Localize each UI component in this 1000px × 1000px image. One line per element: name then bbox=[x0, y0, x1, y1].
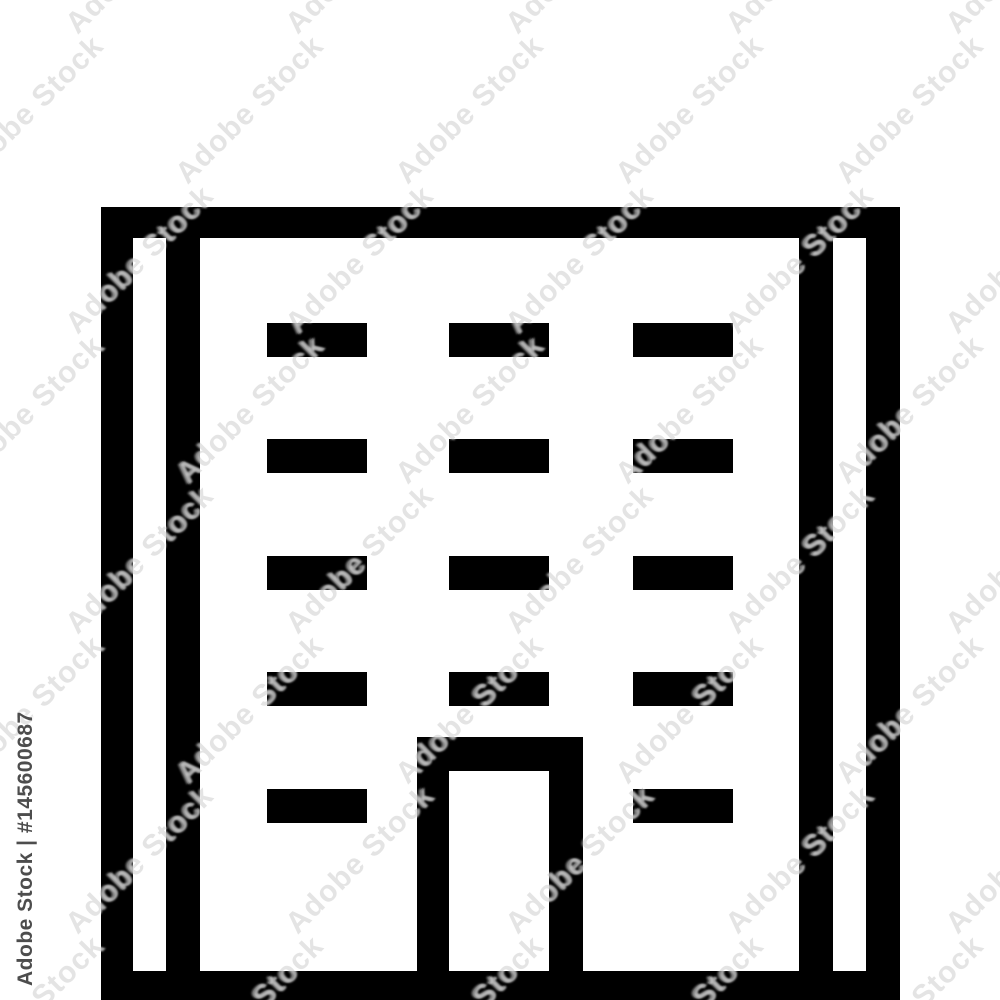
building-inner-left-wall bbox=[166, 238, 200, 971]
adobe-stock-watermark-text: Adobe Stock bbox=[829, 329, 990, 490]
adobe-stock-watermark-text: Adobe Stock bbox=[939, 779, 1000, 940]
adobe-stock-watermark-text: Adobe Stock bbox=[0, 329, 111, 490]
adobe-stock-watermark-text: Adobe Stock bbox=[0, 29, 111, 190]
adobe-stock-watermark-text: Adobe Stock bbox=[939, 179, 1000, 340]
window-dash bbox=[449, 323, 549, 357]
adobe-stock-watermark-text: Adobe Stock bbox=[829, 29, 990, 190]
adobe-stock-watermark-text: Adobe Stock bbox=[829, 629, 990, 790]
adobe-stock-watermark-text: Adobe Stock bbox=[0, 779, 1, 940]
window-dash bbox=[633, 556, 733, 590]
window-dash bbox=[633, 439, 733, 473]
building-top-border bbox=[101, 207, 900, 238]
adobe-stock-watermark-text: Adobe Stock bbox=[609, 629, 770, 790]
adobe-stock-watermark-text: Adobe Stock bbox=[279, 0, 440, 41]
window-dash bbox=[633, 672, 733, 706]
adobe-stock-watermark-text: Adobe Stock bbox=[939, 0, 1000, 41]
window-dash bbox=[267, 556, 367, 590]
adobe-stock-watermark-text: Adobe Stock bbox=[0, 179, 1, 340]
building-bottom-border bbox=[101, 971, 900, 1000]
building-inner-right-wall bbox=[799, 238, 833, 971]
window-dash bbox=[449, 672, 549, 706]
adobe-stock-watermark-text: Adobe Stock bbox=[389, 29, 550, 190]
adobe-stock-watermark-text: Adobe Stock bbox=[499, 179, 660, 340]
adobe-stock-watermark-text: Adobe Stock bbox=[279, 179, 440, 340]
adobe-stock-watermark-text: Adobe Stock bbox=[59, 0, 220, 41]
adobe-stock-watermark-text: Adobe Stock bbox=[169, 29, 330, 190]
adobe-stock-watermark-text: Adobe Stock bbox=[0, 479, 1, 640]
window-dash bbox=[267, 672, 367, 706]
stock-image-canvas: Adobe StockAdobe StockAdobe StockAdobe S… bbox=[0, 0, 1000, 1000]
adobe-stock-watermark-text: Adobe Stock bbox=[499, 0, 660, 41]
adobe-stock-watermark-text: Adobe Stock bbox=[609, 29, 770, 190]
window-dash bbox=[633, 323, 733, 357]
stock-id-watermark: Adobe Stock | #145600687 bbox=[14, 711, 38, 986]
window-dash bbox=[267, 789, 367, 823]
window-dash bbox=[449, 556, 549, 590]
window-dash bbox=[267, 439, 367, 473]
building-outer-right-wall bbox=[866, 207, 900, 1000]
window-dash bbox=[633, 789, 733, 823]
window-dash bbox=[449, 439, 549, 473]
window-dash bbox=[267, 323, 367, 357]
adobe-stock-watermark-text: Adobe Stock bbox=[939, 479, 1000, 640]
building-outer-left-wall bbox=[101, 207, 133, 1000]
adobe-stock-watermark-text: Adobe Stock bbox=[719, 0, 880, 41]
door-opening bbox=[449, 771, 549, 971]
adobe-stock-watermark-text: Adobe Stock bbox=[0, 0, 1, 41]
